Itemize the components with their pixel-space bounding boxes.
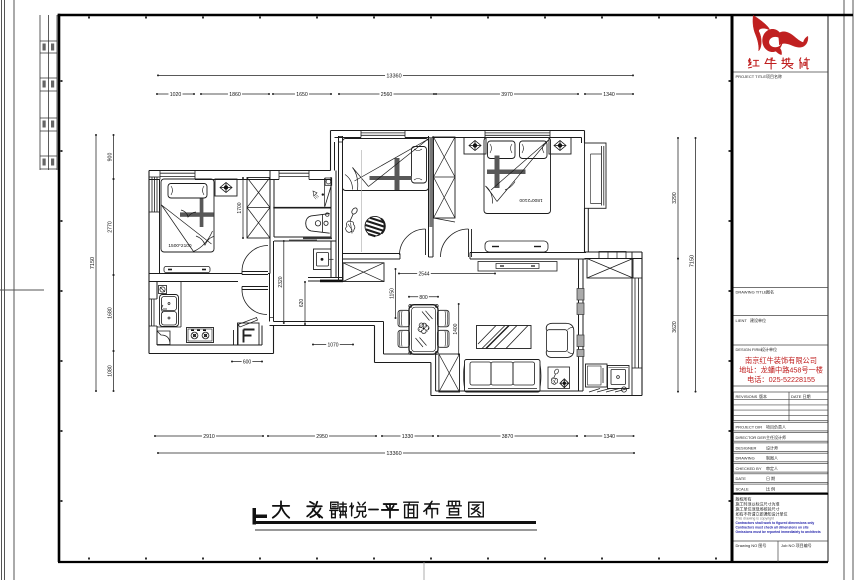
svg-text:1860: 1860 — [229, 92, 241, 98]
svg-text:2770: 2770 — [108, 221, 114, 233]
svg-text:项目负责人: 项目负责人 — [766, 424, 786, 430]
svg-text:DIRECTOR DER: DIRECTOR DER — [736, 435, 766, 440]
svg-text:SCALE: SCALE — [736, 487, 749, 492]
svg-text:LIENT: LIENT — [736, 318, 748, 323]
svg-text:Drawing NO 图号: Drawing NO 图号 — [736, 542, 767, 548]
svg-text:版本: 版本 — [759, 393, 767, 399]
svg-text:2560: 2560 — [381, 92, 393, 98]
svg-text:13360: 13360 — [386, 451, 401, 457]
svg-text:DRAWING TITLE: DRAWING TITLE — [736, 290, 767, 295]
svg-text:3620: 3620 — [672, 321, 678, 333]
svg-text:1070: 1070 — [327, 343, 338, 349]
svg-text:900: 900 — [108, 153, 114, 162]
svg-text:建设单位: 建设单位 — [750, 317, 766, 323]
svg-text:DESIGNER: DESIGNER — [736, 445, 757, 450]
svg-text:比 例: 比 例 — [766, 486, 775, 492]
svg-text:3970: 3970 — [501, 92, 513, 98]
svg-text:设计师: 设计师 — [766, 444, 778, 450]
svg-text:DRAWING: DRAWING — [736, 456, 755, 461]
svg-text:PROJECT TITLE: PROJECT TITLE — [736, 74, 767, 79]
svg-text:DESIGN FIRM: DESIGN FIRM — [736, 347, 762, 352]
svg-text:7150: 7150 — [690, 255, 696, 267]
svg-text:1500*2100: 1500*2100 — [168, 243, 192, 249]
svg-text:600: 600 — [243, 360, 252, 366]
svg-text:日 期: 日 期 — [766, 475, 775, 481]
svg-text:图名: 图名 — [766, 289, 774, 295]
svg-text:Contractors must check all dim: Contractors must check all dimensions on… — [736, 525, 809, 529]
svg-text:2544: 2544 — [418, 272, 429, 278]
svg-text:13360: 13360 — [386, 73, 401, 79]
svg-text:1680: 1680 — [108, 307, 114, 319]
svg-text:7150: 7150 — [90, 257, 96, 269]
svg-text:2320: 2320 — [278, 276, 284, 287]
svg-text:This drawing is copyright: This drawing is copyright — [736, 517, 775, 521]
svg-text:Job NO 项目编号: Job NO 项目编号 — [781, 542, 812, 548]
svg-text:1150: 1150 — [390, 288, 396, 299]
svg-text:PROJECT DIR: PROJECT DIR — [736, 425, 763, 430]
svg-text:Contractors shall work to figu: Contractors shall work to figured dimens… — [736, 521, 815, 525]
svg-text:1340: 1340 — [603, 434, 615, 440]
svg-text:1700: 1700 — [237, 202, 243, 213]
svg-text:如有不符请立即通知设计单位: 如有不符请立即通知设计单位 — [736, 510, 788, 516]
svg-text:地址：龙蟠中路458号一楼: 地址：龙蟠中路458号一楼 — [739, 366, 823, 375]
svg-text:南京红牛装饰有限公司: 南京红牛装饰有限公司 — [745, 356, 817, 365]
svg-text:设计单位: 设计单位 — [761, 346, 777, 352]
svg-text:2910: 2910 — [203, 434, 215, 440]
svg-text:1400: 1400 — [453, 323, 459, 334]
svg-text:620: 620 — [299, 299, 305, 308]
svg-text:Omissions must be reported imm: Omissions must be reported immediately t… — [736, 530, 821, 534]
svg-text:REVISIONS: REVISIONS — [736, 394, 758, 399]
svg-text:3870: 3870 — [502, 434, 514, 440]
svg-text:1080: 1080 — [108, 365, 114, 377]
svg-text:CHECKED BY: CHECKED BY — [736, 466, 762, 471]
svg-text:项目名称: 项目名称 — [766, 73, 782, 79]
svg-text:1330: 1330 — [402, 434, 414, 440]
svg-text:3290: 3290 — [672, 192, 678, 204]
svg-text:800: 800 — [419, 295, 428, 301]
svg-text:制图人: 制图人 — [766, 455, 778, 461]
svg-text:1340: 1340 — [603, 92, 615, 98]
svg-text:2950: 2950 — [316, 434, 328, 440]
svg-text:1020: 1020 — [170, 92, 182, 98]
svg-text:DATE 日期: DATE 日期 — [791, 393, 810, 399]
svg-text:审定人: 审定人 — [766, 465, 778, 471]
svg-text:主任设计师: 主任设计师 — [766, 434, 786, 440]
svg-text:电话：025-52228155: 电话：025-52228155 — [747, 375, 815, 384]
svg-text:1650: 1650 — [296, 92, 308, 98]
svg-text:1800*2100: 1800*2100 — [519, 197, 543, 203]
svg-text:DATE: DATE — [736, 476, 747, 481]
